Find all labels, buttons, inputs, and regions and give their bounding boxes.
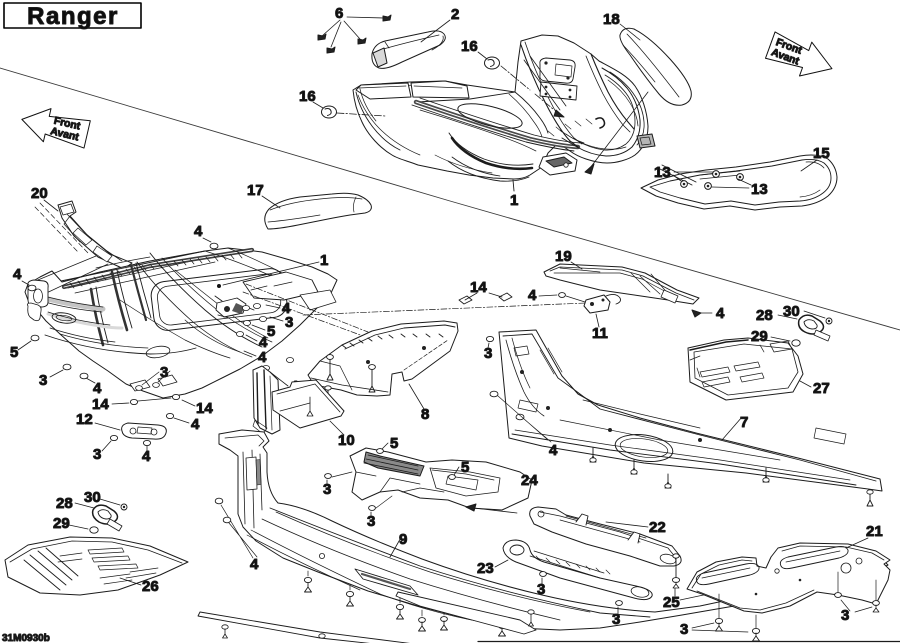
svg-text:4: 4 — [142, 448, 151, 465]
svg-text:2: 2 — [451, 6, 459, 23]
svg-text:30: 30 — [84, 489, 101, 506]
svg-text:18: 18 — [603, 11, 620, 28]
svg-text:26: 26 — [142, 578, 159, 595]
svg-text:4: 4 — [194, 223, 203, 240]
svg-text:12: 12 — [76, 411, 93, 428]
svg-text:14: 14 — [470, 279, 487, 296]
svg-text:3: 3 — [841, 607, 849, 624]
svg-text:21: 21 — [866, 523, 883, 540]
svg-text:31M0930b: 31M0930b — [2, 633, 50, 643]
svg-text:4: 4 — [191, 416, 200, 433]
svg-text:1: 1 — [510, 192, 518, 209]
svg-text:10: 10 — [338, 432, 355, 449]
svg-text:5: 5 — [267, 323, 275, 340]
svg-text:28: 28 — [56, 495, 73, 512]
svg-text:23: 23 — [477, 560, 494, 577]
svg-text:27: 27 — [813, 380, 830, 397]
svg-text:29: 29 — [53, 515, 70, 532]
svg-text:3: 3 — [285, 314, 293, 331]
svg-text:13: 13 — [654, 164, 671, 181]
svg-text:5: 5 — [461, 459, 469, 476]
svg-text:4: 4 — [258, 349, 267, 366]
svg-text:14: 14 — [196, 400, 213, 417]
svg-text:28: 28 — [756, 307, 773, 324]
svg-text:4: 4 — [250, 556, 259, 573]
svg-text:Ranger: Ranger — [27, 3, 119, 30]
svg-text:1: 1 — [320, 252, 328, 269]
svg-text:3: 3 — [612, 611, 620, 628]
svg-text:4: 4 — [716, 305, 725, 322]
svg-text:15: 15 — [813, 145, 830, 162]
svg-text:11: 11 — [592, 325, 608, 342]
svg-text:3: 3 — [93, 446, 101, 463]
svg-text:3: 3 — [39, 372, 47, 389]
svg-text:29: 29 — [751, 328, 768, 345]
svg-text:4: 4 — [549, 442, 558, 459]
svg-text:16: 16 — [461, 38, 478, 55]
svg-text:13: 13 — [751, 181, 768, 198]
svg-text:7: 7 — [740, 414, 748, 431]
svg-text:17: 17 — [247, 182, 264, 199]
svg-text:4: 4 — [13, 266, 22, 283]
svg-text:22: 22 — [649, 519, 666, 536]
svg-text:4: 4 — [528, 287, 537, 304]
svg-text:24: 24 — [521, 472, 538, 489]
svg-text:3: 3 — [537, 581, 545, 598]
svg-text:6: 6 — [335, 5, 343, 22]
svg-text:25: 25 — [663, 594, 680, 611]
svg-text:3: 3 — [160, 364, 168, 381]
svg-text:20: 20 — [31, 185, 48, 202]
svg-text:5: 5 — [10, 344, 18, 361]
svg-text:3: 3 — [680, 621, 688, 638]
svg-text:5: 5 — [390, 435, 398, 452]
svg-text:14: 14 — [92, 396, 109, 413]
svg-text:8: 8 — [421, 406, 429, 423]
svg-text:19: 19 — [555, 248, 572, 265]
